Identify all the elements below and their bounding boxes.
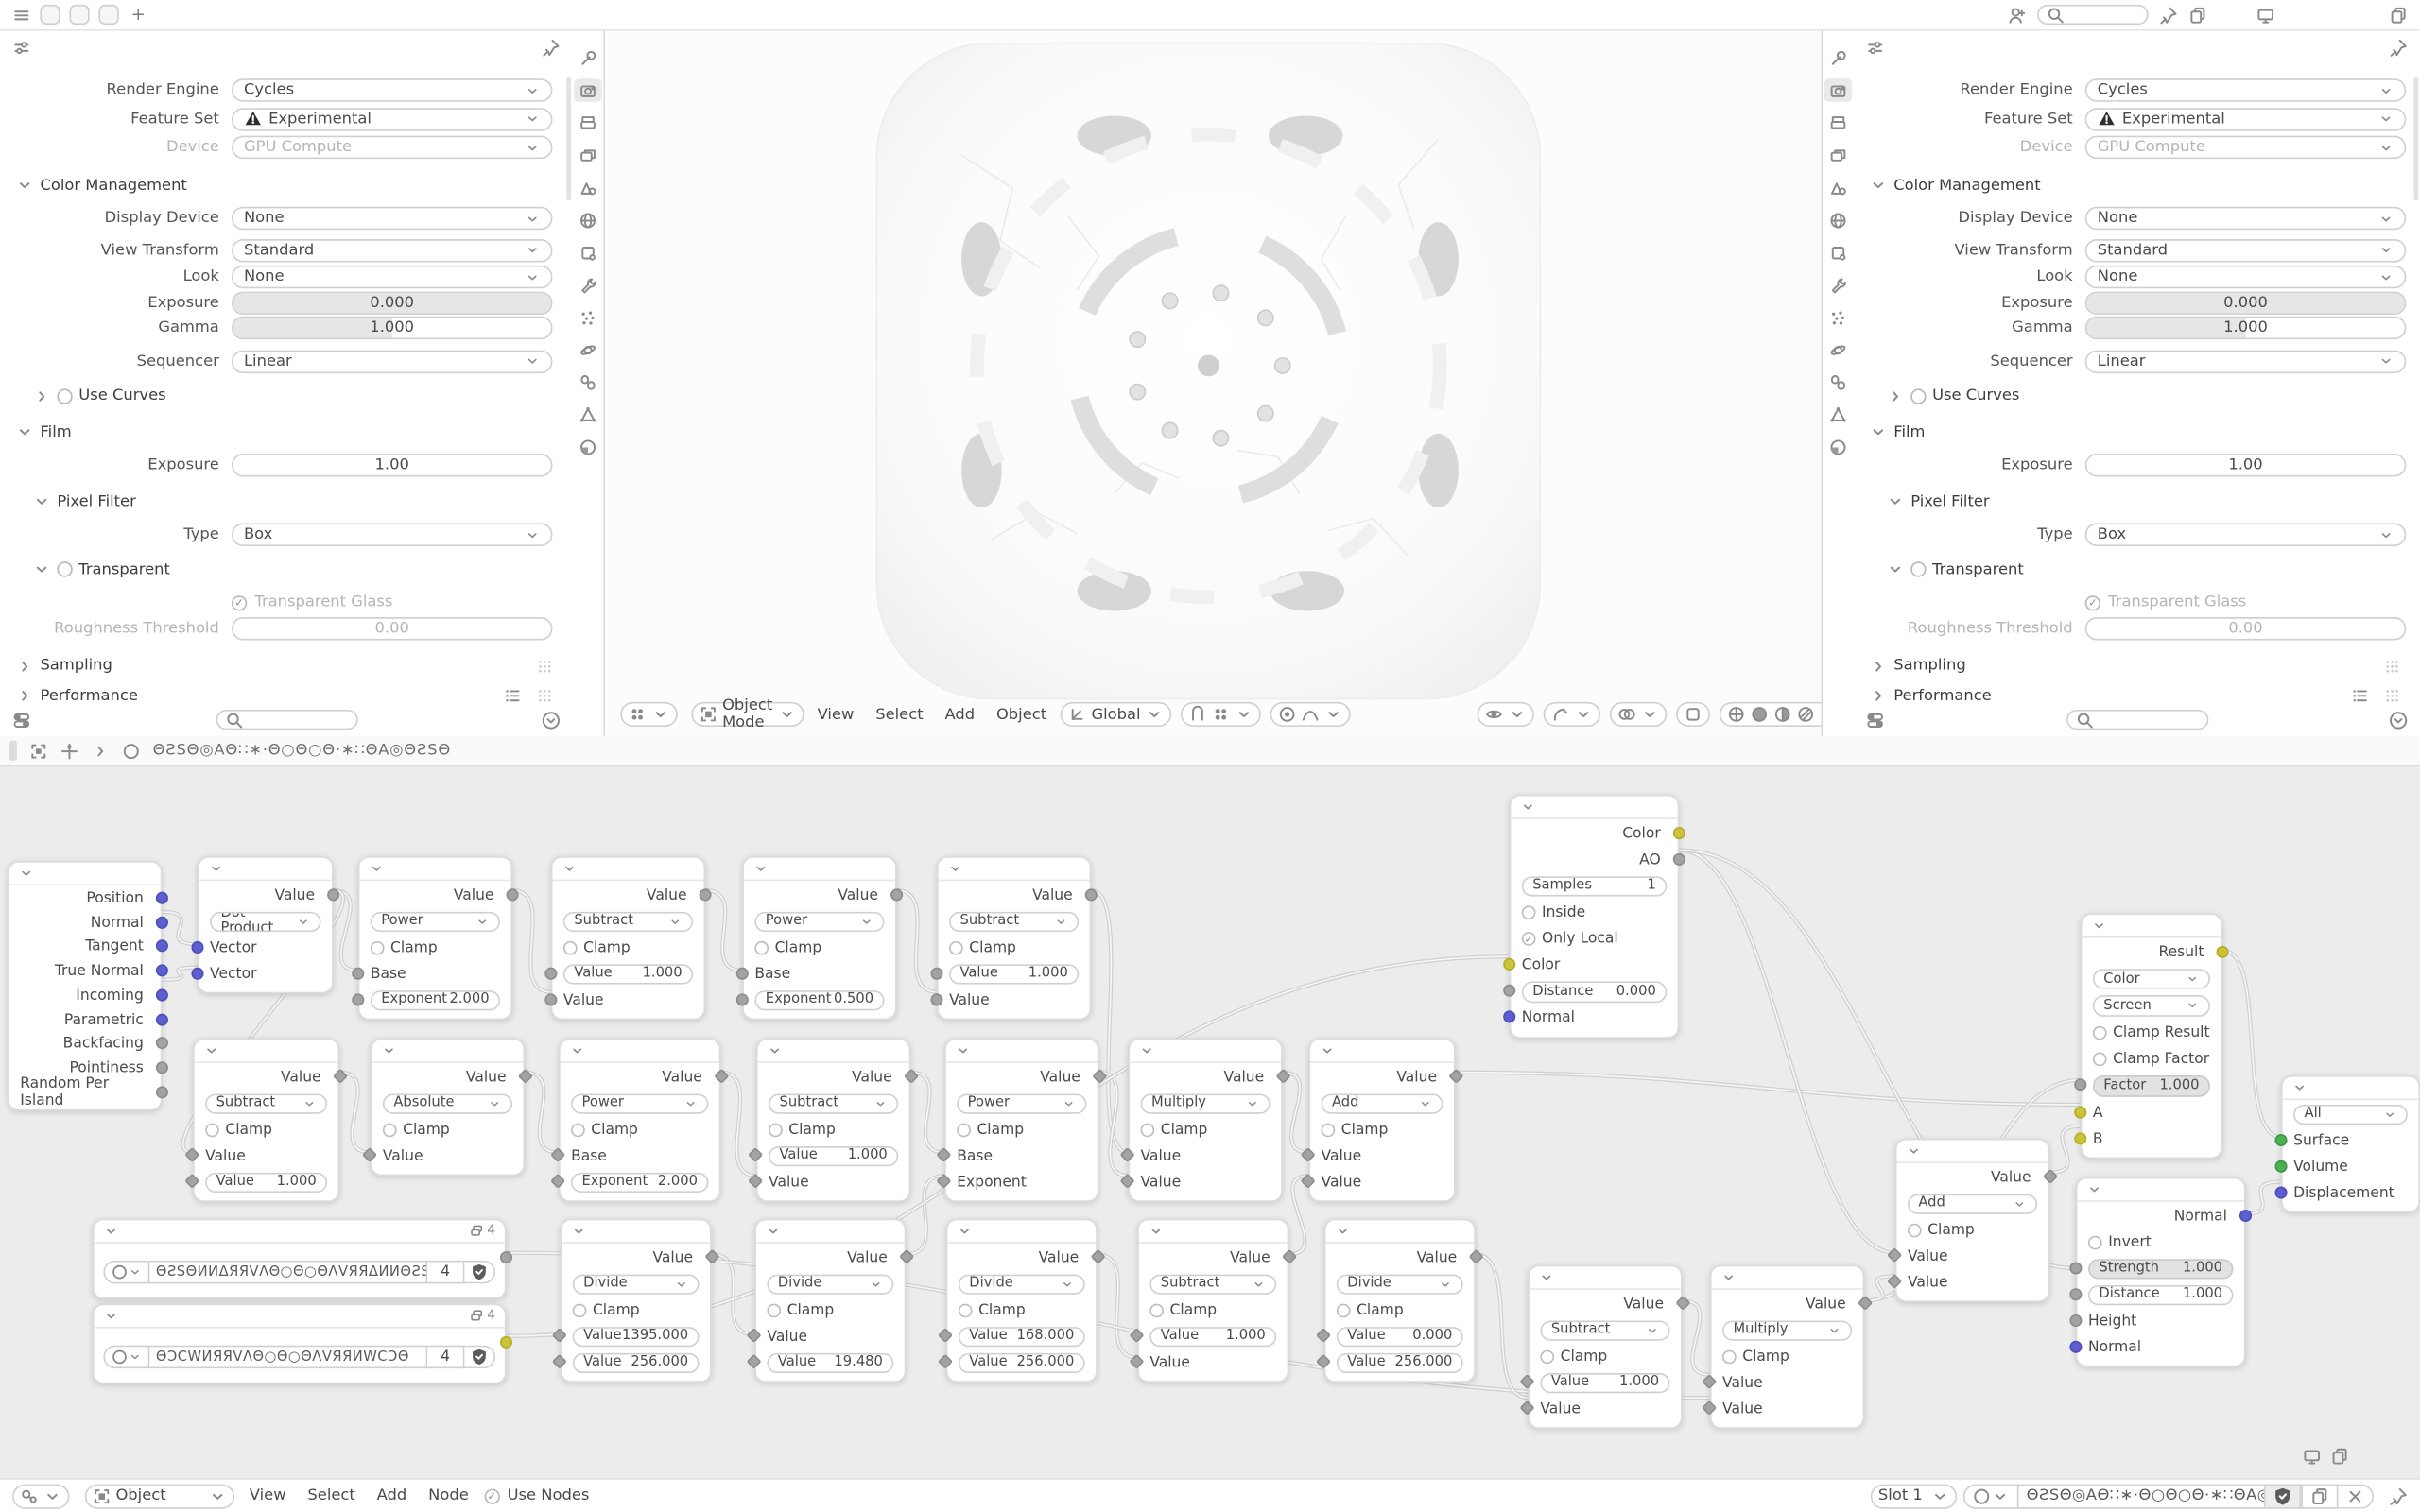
- node-header[interactable]: [1511, 796, 1677, 818]
- checkbox-icon[interactable]: [1149, 1303, 1164, 1317]
- collapse-chevron-icon[interactable]: [1139, 1043, 1154, 1058]
- tab-scene[interactable]: [1824, 176, 1852, 198]
- section-color-management[interactable]: Color Management: [1859, 174, 2408, 198]
- socket-gray[interactable]: [1085, 888, 1098, 901]
- xray-toggle[interactable]: [1676, 702, 1710, 727]
- section-performance[interactable]: Performance: [1859, 684, 2408, 703]
- node-select-dot-product[interactable]: Dot Product: [210, 911, 321, 932]
- node-field-value[interactable]: Value256.000: [959, 1352, 1085, 1373]
- checkbox-icon[interactable]: [1141, 1123, 1155, 1137]
- pin-icon[interactable]: [2159, 6, 2178, 25]
- menu-add[interactable]: Add: [944, 706, 975, 723]
- pin-icon[interactable]: [2389, 39, 2408, 58]
- checkbox-icon[interactable]: [959, 1303, 973, 1317]
- menu-add[interactable]: Add: [377, 1487, 407, 1504]
- socket-blue[interactable]: [156, 988, 168, 1001]
- use-nodes-checkbox[interactable]: Use Nodes: [484, 1487, 589, 1504]
- node-select-divide[interactable]: Divide: [573, 1274, 700, 1295]
- checkbox-icon[interactable]: [1337, 1303, 1351, 1317]
- node-field-strength[interactable]: Strength1.000: [2088, 1258, 2233, 1279]
- node-math-power-3[interactable]: ValuePowerClampBaseExponent2.000: [559, 1039, 720, 1202]
- checkbox-icon[interactable]: [1522, 932, 1536, 946]
- socket-yellow[interactable]: [2216, 946, 2228, 958]
- section-sampling[interactable]: Sampling: [7, 654, 561, 678]
- tab-render[interactable]: [574, 78, 601, 101]
- select-device[interactable]: GPU Compute: [232, 136, 553, 159]
- workspace-tab[interactable]: [98, 5, 118, 25]
- collapse-chevron-icon[interactable]: [2091, 918, 2106, 933]
- node-math-subtract-4[interactable]: ValueSubtractClampValue1.000Value: [756, 1039, 910, 1202]
- socket-gray[interactable]: [544, 967, 557, 979]
- checkbox-icon[interactable]: [769, 1123, 783, 1137]
- node-ambient-occlusion[interactable]: ColorAOSamples1InsideOnly LocalColorDist…: [1510, 795, 1680, 1039]
- node-math-divide-1[interactable]: ValueDivideClampValue1395.000Value256.00…: [561, 1219, 712, 1383]
- page-icon[interactable]: [2389, 6, 2408, 25]
- node-math-absolute[interactable]: ValueAbsoluteClampValue: [371, 1039, 525, 1176]
- section-film[interactable]: Film: [7, 421, 561, 444]
- tab-object[interactable]: [574, 241, 601, 264]
- checkbox-icon[interactable]: [1908, 1223, 1922, 1237]
- checkbox-transparent-glass[interactable]: Transparent Glass: [232, 594, 553, 611]
- options-chevron-icon[interactable]: [542, 711, 561, 730]
- tab-object-data[interactable]: [1824, 403, 1852, 425]
- socket-yellow[interactable]: [500, 1336, 512, 1349]
- socket-blue[interactable]: [1503, 1011, 1515, 1023]
- node-select-multiply[interactable]: Multiply: [1722, 1320, 1852, 1341]
- node-math-add-1[interactable]: ValueAddClampValueValue: [1308, 1039, 1455, 1202]
- properties-search-input[interactable]: [216, 710, 357, 730]
- socket-blue[interactable]: [2275, 1186, 2288, 1198]
- node-select-screen[interactable]: Screen: [2093, 995, 2210, 1016]
- node-field-value[interactable]: Value256.000: [573, 1352, 700, 1373]
- node-field-samples[interactable]: Samples1: [1522, 876, 1667, 897]
- collapse-chevron-icon[interactable]: [957, 1224, 972, 1239]
- node-header[interactable]: [744, 858, 895, 881]
- select-view-transform[interactable]: Standard: [232, 239, 553, 262]
- node-header[interactable]: [372, 1039, 523, 1062]
- node-material-output[interactable]: AllSurfaceVolumeDisplacement: [2281, 1075, 2420, 1212]
- tab-tool[interactable]: [574, 46, 601, 69]
- toggle-use-curves[interactable]: Use Curves: [1859, 385, 2408, 408]
- tab-view-layer[interactable]: [574, 144, 601, 166]
- menu-view[interactable]: View: [250, 1487, 286, 1504]
- filter-toggle-icon[interactable]: [12, 711, 31, 730]
- collapse-chevron-icon[interactable]: [208, 861, 223, 876]
- image-browse-button[interactable]: [103, 1346, 149, 1368]
- drag-handle[interactable]: [9, 741, 17, 761]
- fake-user-shield-icon[interactable]: [2266, 1484, 2302, 1508]
- node-math-subtract-1[interactable]: ValueSubtractClampValue1.000Value: [551, 856, 705, 1020]
- node-select-subtract[interactable]: Subtract: [769, 1093, 898, 1114]
- socket-yellow[interactable]: [2074, 1132, 2086, 1144]
- socket-blue[interactable]: [191, 967, 203, 979]
- select-device[interactable]: GPU Compute: [2085, 136, 2407, 159]
- checkbox-icon[interactable]: [1910, 562, 1926, 577]
- properties-search-input[interactable]: [2066, 710, 2207, 730]
- node-field-value[interactable]: Value168.000: [959, 1326, 1085, 1347]
- collapse-chevron-icon[interactable]: [381, 1043, 396, 1058]
- checkbox-transparent-glass[interactable]: Transparent Glass: [2085, 594, 2407, 611]
- collapse-chevron-icon[interactable]: [1520, 799, 1535, 815]
- slot-select[interactable]: Slot 1: [1871, 1484, 1957, 1508]
- node-vector-math-dot-product[interactable]: ValueDot ProductVectorVector: [198, 856, 334, 993]
- checkbox-icon[interactable]: [371, 941, 385, 955]
- node-field-value[interactable]: Value1.000: [769, 1145, 898, 1166]
- node-select-absolute[interactable]: Absolute: [383, 1093, 512, 1114]
- collapse-chevron-icon[interactable]: [956, 1043, 971, 1058]
- node-field-value[interactable]: Value1.000: [563, 964, 693, 985]
- checkbox-icon[interactable]: [2093, 1053, 2107, 1067]
- node-math-subtract-6[interactable]: ValueSubtractClampValue1.000Value: [1528, 1265, 1682, 1429]
- select-display-device[interactable]: None: [232, 207, 553, 230]
- field-gamma[interactable]: 1.000: [2085, 317, 2407, 339]
- socket-yellow[interactable]: [1503, 958, 1515, 971]
- shader-context-select[interactable]: Object: [85, 1484, 234, 1508]
- user-plus-icon[interactable]: [2008, 6, 2027, 25]
- select-look[interactable]: None: [2085, 266, 2407, 288]
- socket-gray[interactable]: [2069, 1288, 2082, 1300]
- checkbox-icon[interactable]: [957, 1123, 971, 1137]
- socket-blue[interactable]: [156, 1013, 168, 1025]
- node-header[interactable]: [1325, 1220, 1474, 1243]
- options-chevron-icon[interactable]: [2389, 711, 2408, 730]
- node-header[interactable]: [939, 858, 1090, 881]
- workspace-tab[interactable]: [40, 5, 60, 25]
- node-field-value[interactable]: Value1395.000: [573, 1326, 700, 1347]
- check-transparent-glass[interactable]: Transparent Glass: [7, 591, 561, 614]
- list-icon[interactable]: [2351, 687, 2370, 704]
- copy-icon[interactable]: [2330, 1447, 2349, 1466]
- node-field-distance[interactable]: Distance1.000: [2088, 1284, 2233, 1305]
- close-icon[interactable]: [2338, 1484, 2374, 1508]
- field-exposure[interactable]: 1.00: [232, 454, 553, 476]
- node-math-multiply-1[interactable]: ValueMultiplyClampValueValue: [1128, 1039, 1282, 1202]
- section-pixel-filter[interactable]: Pixel Filter: [7, 490, 561, 513]
- socket-gray[interactable]: [930, 967, 942, 979]
- viewport-3d[interactable]: Object Mode View Select Add Object Globa…: [605, 31, 1822, 736]
- field-gamma[interactable]: 1.000: [232, 317, 553, 339]
- select-display-device[interactable]: None: [2085, 207, 2407, 230]
- node-mix-color[interactable]: ResultColorScreenClamp ResultClamp Facto…: [2081, 914, 2222, 1160]
- socket-yellow[interactable]: [1673, 827, 1685, 839]
- tab-modifiers[interactable]: [574, 273, 601, 296]
- scrollbar[interactable]: [566, 77, 571, 201]
- editor-type-button[interactable]: [12, 1484, 69, 1508]
- node-math-divide-2[interactable]: ValueDivideClampValueValue19.480: [754, 1219, 906, 1383]
- collapse-chevron-icon[interactable]: [204, 1043, 219, 1058]
- node-bump[interactable]: NormalInvertStrength1.000Distance1.000He…: [2076, 1177, 2246, 1367]
- select-sequencer[interactable]: Linear: [2085, 350, 2407, 372]
- socket-gray[interactable]: [507, 888, 519, 901]
- node-geometry[interactable]: PositionNormalTangentTrue NormalIncoming…: [8, 861, 162, 1111]
- material-name-input[interactable]: ΘƧSΘ◎AΘ∷∗·Θ○Θ○Θ·∗∷ΘA◎ΘƧSΘ: [2019, 1484, 2266, 1508]
- node-field-value[interactable]: Value1.000: [1540, 1372, 1669, 1393]
- tab-output[interactable]: [574, 112, 601, 134]
- copy-icon[interactable]: [2301, 1484, 2338, 1508]
- socket-gray[interactable]: [2074, 1079, 2086, 1091]
- checkbox-icon[interactable]: [563, 941, 578, 955]
- socket-gray[interactable]: [352, 967, 364, 979]
- node-header[interactable]: [758, 1039, 909, 1062]
- socket-green[interactable]: [2275, 1160, 2288, 1172]
- node-header[interactable]: [195, 1039, 338, 1062]
- checkbox-icon[interactable]: [57, 562, 72, 577]
- socket-gray[interactable]: [2069, 1314, 2082, 1327]
- node-header[interactable]: [359, 858, 510, 881]
- collapse-chevron-icon[interactable]: [19, 866, 34, 881]
- node-math-subtract-2[interactable]: ValueSubtractClampValue1.000Value: [937, 856, 1091, 1020]
- drag-dots-icon[interactable]: [536, 687, 555, 704]
- tab-material[interactable]: [1824, 435, 1852, 457]
- image-users-count[interactable]: 4: [427, 1261, 464, 1283]
- collapse-chevron-icon[interactable]: [2086, 1182, 2101, 1197]
- drag-dots-icon[interactable]: [2383, 687, 2402, 704]
- node-math-subtract-3[interactable]: ValueSubtractClampValueValue1.000: [193, 1039, 339, 1202]
- node-field-exponent[interactable]: Exponent0.500: [754, 989, 884, 1010]
- select-type[interactable]: Box: [2085, 524, 2407, 546]
- collapse-chevron-icon[interactable]: [2291, 1080, 2307, 1095]
- checkbox-icon[interactable]: [1910, 388, 1926, 404]
- node-field-exponent[interactable]: Exponent2.000: [371, 989, 500, 1010]
- collapse-chevron-icon[interactable]: [571, 1224, 586, 1239]
- socket-gray[interactable]: [736, 993, 749, 1005]
- checkbox-icon[interactable]: [1322, 1123, 1336, 1137]
- node-math-power-2[interactable]: ValuePowerClampBaseExponent0.500: [742, 856, 896, 1020]
- field-roughness-threshold[interactable]: 0.00: [2085, 617, 2407, 640]
- tab-world[interactable]: [574, 208, 601, 231]
- socket-blue[interactable]: [2069, 1340, 2082, 1352]
- checkbox-icon[interactable]: [767, 1303, 781, 1317]
- box-select-icon[interactable]: [29, 741, 48, 760]
- socket-gray[interactable]: [352, 993, 364, 1005]
- tab-object[interactable]: [1824, 241, 1852, 264]
- tab-view-layer[interactable]: [1824, 144, 1852, 166]
- toggle-transparent[interactable]: Transparent: [7, 558, 561, 581]
- node-header[interactable]: [756, 1220, 905, 1243]
- checkbox-icon[interactable]: [949, 941, 963, 955]
- node-header[interactable]: [1310, 1039, 1454, 1062]
- section-film[interactable]: Film: [1859, 421, 2408, 444]
- menu-view[interactable]: View: [818, 706, 855, 723]
- checkbox-icon[interactable]: [383, 1123, 397, 1137]
- select-render-engine[interactable]: Cycles: [232, 79, 553, 102]
- material-browse-button[interactable]: [1963, 1484, 2019, 1508]
- menu-select[interactable]: Select: [307, 1487, 354, 1504]
- collapse-chevron-icon[interactable]: [767, 1043, 782, 1058]
- collapse-chevron-icon[interactable]: [1539, 1270, 1554, 1285]
- node-image-texture-1[interactable]: 4ΘƧSΘИИΔЯЯVΛΘ○Θ○ΘΛVЯЯΔИИΘƧSΘ4: [93, 1219, 507, 1299]
- checkbox-icon[interactable]: [205, 1123, 219, 1137]
- socket-gray[interactable]: [156, 1061, 168, 1074]
- node-select-subtract[interactable]: Subtract: [949, 911, 1079, 932]
- menu-object[interactable]: Object: [996, 706, 1046, 723]
- node-header[interactable]: [2283, 1077, 2419, 1100]
- node-editor-canvas[interactable]: PositionNormalTangentTrue NormalIncoming…: [0, 766, 2420, 1478]
- node-field-value[interactable]: Value1.000: [949, 964, 1079, 985]
- socket-gray[interactable]: [890, 888, 903, 901]
- collapse-chevron-icon[interactable]: [766, 1224, 781, 1239]
- node-field-factor[interactable]: Factor1.000: [2093, 1075, 2210, 1096]
- node-math-multiply-2[interactable]: ValueMultiplyClampValueValue: [1710, 1265, 1864, 1429]
- node-header[interactable]: [561, 1039, 719, 1062]
- node-math-add-2[interactable]: ValueAddClampValueValue: [1895, 1139, 2049, 1302]
- list-icon[interactable]: [503, 687, 522, 704]
- checkbox-icon[interactable]: [571, 1123, 585, 1137]
- collapse-chevron-icon[interactable]: [947, 861, 962, 876]
- node-header[interactable]: [9, 863, 161, 885]
- socket-blue[interactable]: [191, 941, 203, 954]
- fake-user-shield-icon[interactable]: [464, 1346, 495, 1368]
- node-field-value[interactable]: Value0.000: [1337, 1326, 1463, 1347]
- node-field-value[interactable]: Value1.000: [1149, 1326, 1276, 1347]
- node-header[interactable]: [1139, 1220, 1288, 1243]
- node-header[interactable]: [562, 1220, 710, 1243]
- node-math-power-1[interactable]: ValuePowerClampBaseExponent2.000: [358, 856, 512, 1020]
- tab-physics[interactable]: [574, 338, 601, 361]
- socket-gray[interactable]: [930, 993, 942, 1005]
- socket-green[interactable]: [2275, 1134, 2288, 1146]
- node-field-exponent[interactable]: Exponent2.000: [571, 1172, 708, 1193]
- workspace-tab[interactable]: [69, 5, 89, 25]
- snap-group[interactable]: [1181, 702, 1261, 727]
- select-type[interactable]: Box: [232, 524, 553, 546]
- properties-editor-icon[interactable]: [1866, 39, 1885, 58]
- node-select-power[interactable]: Power: [571, 1093, 708, 1114]
- collapse-chevron-icon[interactable]: [1720, 1270, 1736, 1285]
- node-header[interactable]: [2082, 915, 2221, 937]
- editor-type-button[interactable]: [620, 702, 677, 727]
- node-select-subtract[interactable]: Subtract: [1149, 1274, 1276, 1295]
- menu-node[interactable]: Node: [428, 1487, 469, 1504]
- tab-render[interactable]: [1824, 78, 1852, 101]
- collapse-chevron-icon[interactable]: [103, 1224, 118, 1239]
- drag-dots-icon[interactable]: [536, 657, 555, 676]
- node-header[interactable]: [946, 1039, 1098, 1062]
- socket-gray[interactable]: [1673, 853, 1685, 866]
- node-select-multiply[interactable]: Multiply: [1141, 1093, 1270, 1114]
- field-roughness-threshold[interactable]: 0.00: [232, 617, 553, 640]
- select-render-engine[interactable]: Cycles: [2085, 79, 2407, 102]
- section-color-management[interactable]: Color Management: [7, 174, 561, 198]
- node-header[interactable]: 4: [95, 1220, 505, 1243]
- socket-gray[interactable]: [1503, 985, 1515, 997]
- menu-select[interactable]: Select: [875, 706, 923, 723]
- section-performance[interactable]: Performance: [7, 684, 561, 703]
- select-view-transform[interactable]: Standard: [2085, 239, 2407, 262]
- gizmo-group[interactable]: [1544, 702, 1600, 727]
- image-name-input[interactable]: ΘƆCWИЯЯVΛΘ○Θ○ΘΛVЯЯИWCƆΘ: [149, 1346, 427, 1368]
- toggle-use-curves[interactable]: Use Curves: [7, 385, 561, 408]
- node-header[interactable]: [2078, 1178, 2244, 1201]
- visibility-group[interactable]: [1477, 702, 1533, 727]
- shading-group[interactable]: [1720, 702, 1822, 727]
- tab-material[interactable]: [574, 435, 601, 457]
- node-select-power[interactable]: Power: [371, 911, 500, 932]
- node-select-add[interactable]: Add: [1908, 1194, 2037, 1214]
- node-select-subtract[interactable]: Subtract: [205, 1093, 327, 1114]
- socket-blue[interactable]: [2239, 1210, 2252, 1222]
- socket-blue[interactable]: [156, 916, 168, 928]
- node-header[interactable]: [1712, 1266, 1863, 1289]
- node-select-divide[interactable]: Divide: [767, 1274, 893, 1295]
- node-select-divide[interactable]: Divide: [959, 1274, 1085, 1295]
- node-header[interactable]: [1897, 1141, 2048, 1163]
- checkbox-icon[interactable]: [1522, 905, 1536, 919]
- field-exposure[interactable]: 1.00: [2085, 454, 2407, 476]
- tab-physics[interactable]: [1824, 338, 1852, 361]
- socket-gray[interactable]: [500, 1251, 512, 1263]
- node-select-subtract[interactable]: Subtract: [1540, 1320, 1669, 1341]
- proportional-group[interactable]: [1270, 702, 1351, 727]
- tab-constraints[interactable]: [574, 370, 601, 393]
- node-image-texture-2[interactable]: 4ΘƆCWИЯЯVΛΘ○Θ○ΘΛVЯЯИWCƆΘ4: [93, 1304, 507, 1384]
- socket-gray[interactable]: [700, 888, 712, 901]
- add-workspace-button[interactable]: +: [131, 5, 146, 25]
- collapse-chevron-icon[interactable]: [1320, 1043, 1335, 1058]
- checkbox-icon[interactable]: [57, 388, 72, 404]
- node-select-divide[interactable]: Divide: [1337, 1274, 1463, 1295]
- node-select-all[interactable]: All: [2293, 1104, 2408, 1125]
- tab-scene[interactable]: [574, 176, 601, 198]
- collapse-chevron-icon[interactable]: [1335, 1224, 1350, 1239]
- socket-yellow[interactable]: [2074, 1106, 2086, 1118]
- monitor-icon[interactable]: [2256, 6, 2275, 25]
- hamburger-icon[interactable]: [12, 6, 31, 25]
- socket-gray[interactable]: [736, 967, 749, 979]
- node-header[interactable]: [947, 1220, 1096, 1243]
- pin-icon[interactable]: [542, 39, 561, 58]
- node-field-distance[interactable]: Distance0.000: [1522, 982, 1667, 1003]
- move-icon[interactable]: [60, 741, 79, 760]
- orientation-select[interactable]: Global: [1061, 702, 1171, 727]
- node-select-color[interactable]: Color: [2093, 969, 2210, 989]
- checkbox-icon[interactable]: [573, 1303, 587, 1317]
- tab-object-data[interactable]: [574, 403, 601, 425]
- select-feature-set[interactable]: Experimental: [232, 108, 553, 130]
- collapse-chevron-icon[interactable]: [369, 861, 384, 876]
- node-select-subtract[interactable]: Subtract: [563, 911, 693, 932]
- scrollbar[interactable]: [2413, 77, 2418, 201]
- node-header[interactable]: [199, 858, 332, 881]
- checkbox-icon[interactable]: [1722, 1349, 1737, 1364]
- overlays-group[interactable]: [1610, 702, 1667, 727]
- field-exposure[interactable]: 0.000: [232, 291, 553, 314]
- checkbox-icon[interactable]: [2093, 1025, 2107, 1039]
- check-transparent-glass[interactable]: Transparent Glass: [1859, 591, 2408, 614]
- select-look[interactable]: None: [232, 266, 553, 288]
- select-feature-set[interactable]: Experimental: [2085, 108, 2407, 130]
- tab-particles[interactable]: [574, 305, 601, 328]
- node-math-divide-3[interactable]: ValueDivideClampValue168.000Value256.000: [946, 1219, 1098, 1383]
- section-sampling[interactable]: Sampling: [1859, 654, 2408, 678]
- node-field-value[interactable]: Value19.480: [767, 1352, 893, 1373]
- node-math-subtract-5[interactable]: ValueSubtractClampValue1.000Value: [1137, 1219, 1288, 1383]
- field-exposure[interactable]: 0.000: [2085, 291, 2407, 314]
- image-browse-button[interactable]: [103, 1261, 149, 1283]
- socket-gray[interactable]: [2069, 1262, 2082, 1274]
- topbar-search-input[interactable]: [2037, 5, 2149, 25]
- toggle-transparent[interactable]: Transparent: [1859, 558, 2408, 581]
- socket-gray[interactable]: [156, 1086, 168, 1098]
- socket-gray[interactable]: [544, 993, 557, 1005]
- section-pixel-filter[interactable]: Pixel Filter: [1859, 490, 2408, 513]
- checkbox-icon[interactable]: [754, 941, 769, 955]
- node-field-value[interactable]: Value1.000: [205, 1172, 327, 1193]
- tab-modifiers[interactable]: [1824, 273, 1852, 296]
- properties-editor-icon[interactable]: [12, 39, 31, 58]
- node-math-divide-4[interactable]: ValueDivideClampValue0.000Value256.000: [1324, 1219, 1476, 1383]
- node-select-power[interactable]: Power: [957, 1093, 1086, 1114]
